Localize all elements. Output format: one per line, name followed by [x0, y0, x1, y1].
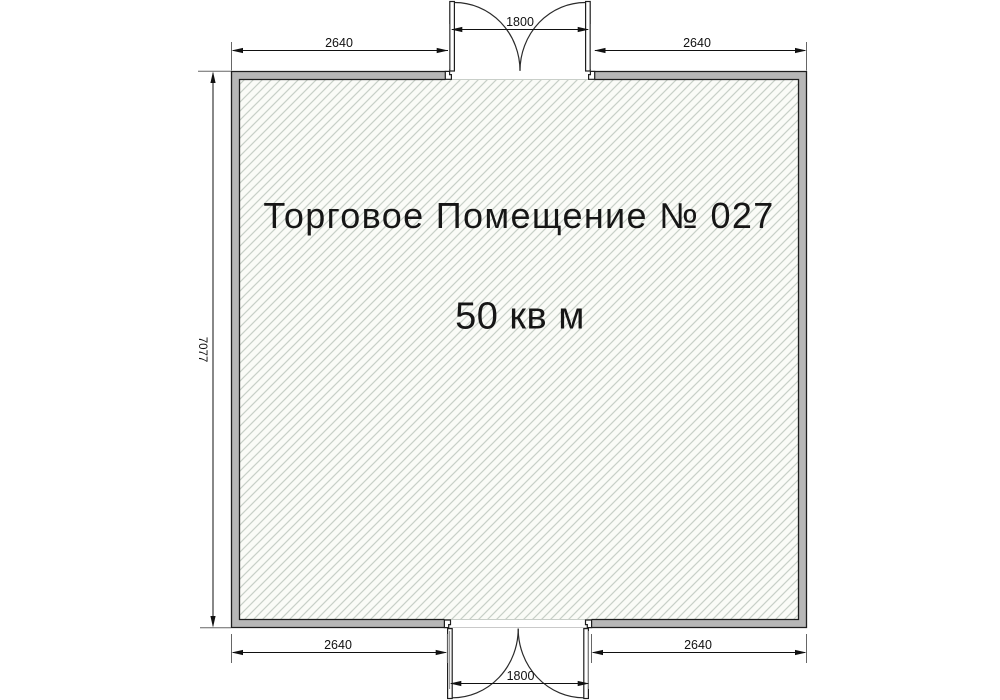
svg-text:7077: 7077 — [196, 337, 208, 363]
svg-text:2640: 2640 — [684, 638, 712, 652]
svg-text:2640: 2640 — [683, 36, 711, 50]
svg-text:2640: 2640 — [325, 36, 353, 50]
svg-text:1800: 1800 — [507, 669, 535, 683]
svg-text:1800: 1800 — [506, 15, 534, 29]
svg-text:50 кв м: 50 кв м — [455, 296, 585, 338]
svg-text:Торговое Помещение № 027: Торговое Помещение № 027 — [263, 195, 774, 236]
svg-text:2640: 2640 — [324, 638, 352, 652]
